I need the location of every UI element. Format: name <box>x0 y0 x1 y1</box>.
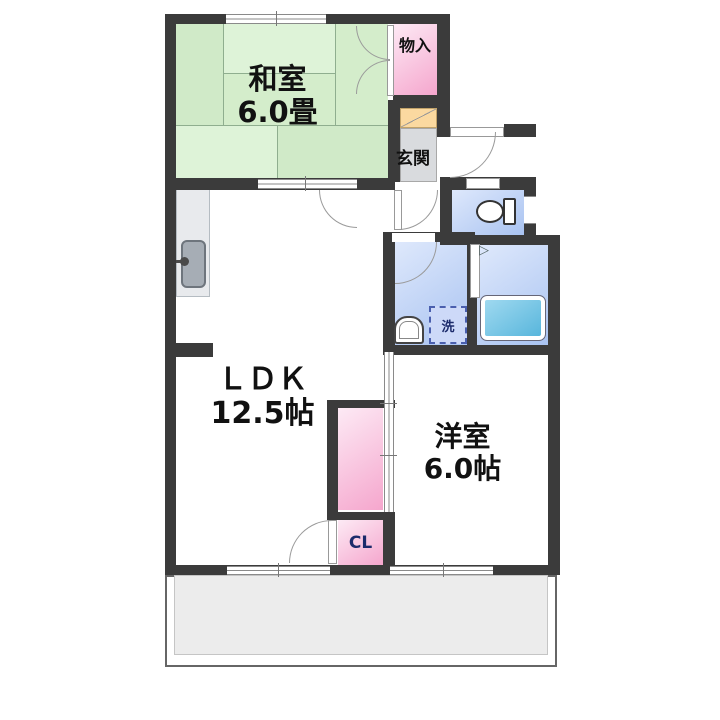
toilet-icon <box>503 198 516 225</box>
yoshitsu-size: 6.0帖 <box>424 453 502 485</box>
balcony-floor <box>174 575 548 655</box>
wall-genkan-left <box>388 100 400 182</box>
door-gap-washroom <box>392 233 435 242</box>
wall-bottom <box>165 565 560 575</box>
toilet-icon <box>476 200 504 223</box>
folding-door-icon: ▷ <box>479 243 489 258</box>
monoire-label: 物入 <box>391 33 439 55</box>
window-tick <box>380 455 397 456</box>
washitsu-name: 和室 <box>248 63 306 96</box>
shoe-cabinet <box>400 108 437 128</box>
ldk-size: 12.5帖 <box>210 397 314 432</box>
window-tick <box>380 403 397 404</box>
washbasin-icon <box>394 316 424 344</box>
washitsu-size: 6.0畳 <box>237 96 317 129</box>
laundry-label: 洗 <box>441 316 454 335</box>
washitsu-door-arc <box>319 190 357 228</box>
cl-label: CL <box>338 520 383 565</box>
wall-entry-stub <box>504 124 536 137</box>
wall-bath-bottom <box>383 345 560 355</box>
yoshitsu-name: 洋室 <box>434 421 490 453</box>
window-tick <box>278 563 279 577</box>
sliding-door-ldk-yoshitsu <box>384 352 394 512</box>
ldk-name: ＬＤＫ <box>218 363 308 398</box>
cl-door-arc <box>289 520 332 563</box>
wall-left <box>165 14 176 575</box>
yoshitsu-label: 洋室 6.0帖 <box>400 415 525 491</box>
entrance-door-arc <box>450 132 496 178</box>
window-tick <box>276 11 277 26</box>
washitsu-label: 和室 6.0畳 <box>195 58 360 134</box>
window-tick <box>443 563 444 577</box>
wall-kitchen-stub <box>165 343 213 357</box>
washing-machine-area: 洗 <box>429 306 467 344</box>
window-tick <box>305 176 306 191</box>
genkan-label: 玄関 <box>383 145 443 167</box>
floor-plan: ▷ 洗 和室 6.0畳 物入 玄関 ＬＤＫ 12.5帖 洋室 6.0帖 CL <box>0 0 720 720</box>
ldk-label: ＬＤＫ 12.5帖 <box>180 358 345 436</box>
hall-door-arc <box>398 190 438 230</box>
bathtub-icon <box>481 296 545 340</box>
door-toilet <box>466 178 500 189</box>
window-yoshitsu-bottom <box>390 566 493 575</box>
wall-right <box>548 245 560 575</box>
sliding-door-washitsu-ldk <box>258 179 357 189</box>
window-toilet <box>524 196 536 224</box>
wall-monoire-bottom <box>393 95 437 108</box>
